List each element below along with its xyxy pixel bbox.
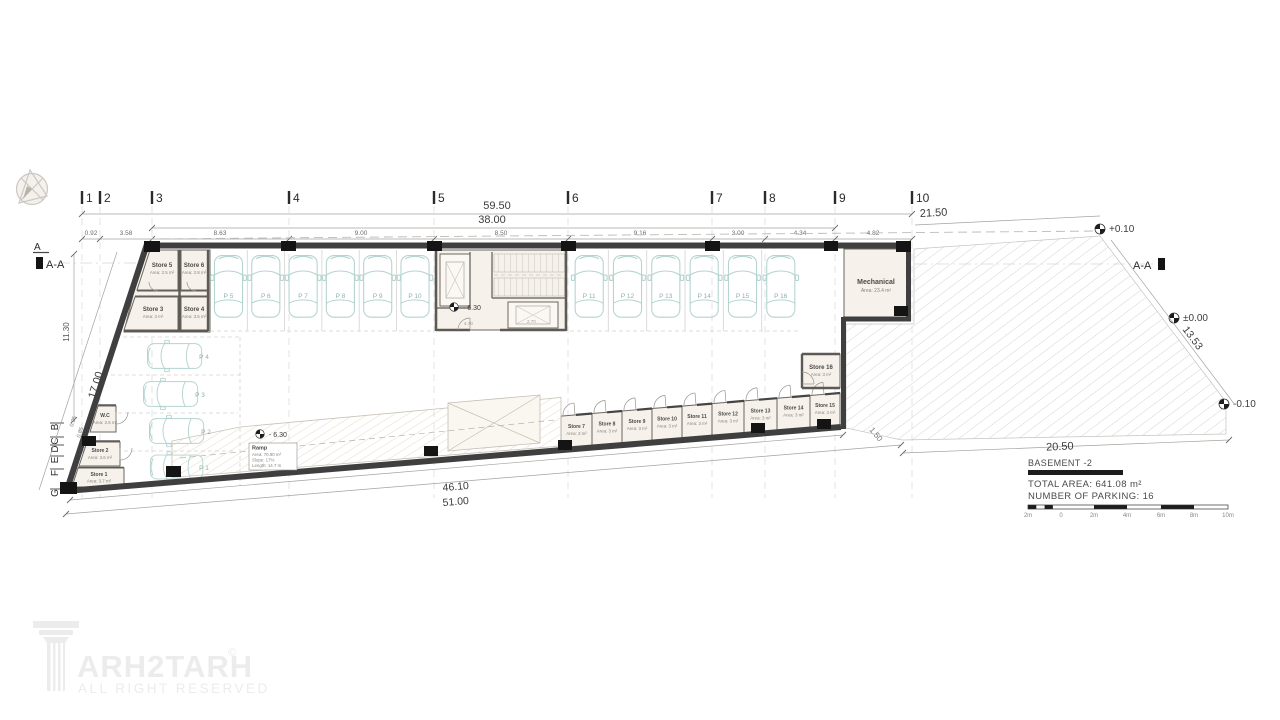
- scale-label: 10m: [1222, 513, 1234, 519]
- store-1-area: Area: 3.7 m²: [87, 479, 112, 484]
- parking-label: P 6: [261, 293, 271, 300]
- section-label-left: A-A: [46, 259, 65, 271]
- store-9-area: Area: 3 m²: [627, 426, 648, 431]
- parking-label: P 3: [195, 392, 205, 399]
- grid-row-a: A: [34, 242, 41, 253]
- basement-plan-drawing: 1 2 3 4 5 6 7 8 9 10 59.50 38.00 21.50 0…: [0, 0, 1280, 720]
- section-marker-right: [1158, 258, 1165, 270]
- store-4-area: Area: 3.5 m²: [182, 314, 207, 319]
- store-2-area: Area: 3.6 m²: [88, 455, 113, 460]
- ramp-name: Ramp: [252, 446, 268, 452]
- store-1-name: Store 1: [91, 472, 108, 478]
- store-12-area: Area: 3 m²: [718, 419, 739, 424]
- level-basement-stair: - 6.30: [463, 305, 481, 312]
- parking-label: P 16: [774, 293, 788, 300]
- store-5-name: Store 5: [152, 263, 173, 269]
- dim-seg-6: 9.16: [634, 230, 647, 237]
- scale-label: 4m: [1123, 513, 1131, 519]
- store-16-area: Area: 3 m²: [811, 372, 832, 377]
- grid-col-6: 6: [572, 191, 579, 205]
- store-3-area: Area: 3 m²: [143, 314, 164, 319]
- scale-label: 2m: [1024, 513, 1032, 519]
- dim-seg-4: 9.00: [355, 230, 368, 237]
- grid-col-1: 1: [86, 191, 93, 205]
- ramp-slope-text: Slope: 17%: [252, 458, 275, 463]
- mechanical-area: Area: 23.4 m²: [861, 288, 892, 294]
- parking-label: P 12: [621, 293, 635, 300]
- store-3-name: Store 3: [143, 307, 164, 313]
- store-8-name: Store 8: [599, 422, 616, 428]
- dim-lseg-1: 0.25: [69, 416, 78, 428]
- grid-row-f: F: [50, 470, 61, 476]
- store-13-name: Store 13: [751, 409, 771, 415]
- store-2-name: Store 2: [92, 448, 109, 454]
- level-zero: ±0.00: [1183, 313, 1208, 324]
- store-10-name: Store 10: [657, 417, 677, 423]
- ramp-length-text: Length: 14.7 m: [252, 463, 282, 468]
- wc-name: W.C: [100, 413, 110, 419]
- parking-label: P 9: [373, 293, 383, 300]
- parking-label: P 15: [736, 293, 750, 300]
- store-8-area: Area: 3 m²: [597, 429, 618, 434]
- store-13-area: Area: 3 m²: [750, 416, 771, 421]
- grid-row-c: C: [50, 437, 61, 444]
- dim-stair-width: 4.70: [464, 321, 473, 326]
- dim-overall-top: 59.50: [483, 200, 511, 212]
- dim-bottom-outer: 51.00: [442, 495, 469, 509]
- floor-title: BASEMENT -2: [1028, 458, 1092, 468]
- scale-bar: [1028, 505, 1228, 509]
- store-12-name: Store 12: [718, 412, 738, 418]
- store-14-area: Area: 3 m²: [783, 413, 804, 418]
- store-11-name: Store 11: [687, 414, 707, 420]
- level-basement-ramp: - 6.30: [269, 432, 287, 439]
- floor-plan-sheet: 1 2 3 4 5 6 7 8 9 10 59.50 38.00 21.50 0…: [0, 0, 1280, 720]
- grid-col-9: 9: [839, 191, 846, 205]
- brand-tagline: ALL RIGHT RESERVED: [78, 681, 270, 696]
- dim-yard-bottom: 20.50: [1046, 440, 1074, 453]
- north-arrow-icon: [17, 170, 48, 205]
- dim-yard-top: 21.50: [920, 207, 948, 220]
- scale-label: 0: [1059, 513, 1063, 519]
- copyright-icon: ©: [228, 647, 236, 659]
- dim-left-height: 11.30: [62, 322, 71, 342]
- total-area-text: TOTAL AREA: 641.08 m²: [1028, 479, 1142, 490]
- store-7-area: Area: 3 m²: [566, 431, 587, 436]
- column-icon: [33, 621, 79, 691]
- grid-col-7: 7: [716, 191, 723, 205]
- store-15-name: Store 15: [815, 403, 835, 409]
- level-yard: -0.10: [1233, 399, 1256, 410]
- grid-col-10: 10: [916, 191, 930, 205]
- grid-col-8: 8: [769, 191, 776, 205]
- parking-label: P 14: [698, 293, 712, 300]
- parking-label: P 1: [199, 465, 209, 472]
- scale-label: 6m: [1157, 513, 1165, 519]
- parking-label: P 13: [659, 293, 673, 300]
- dim-seg-9: 4.82: [867, 230, 880, 237]
- dim-seg-7: 3.00: [732, 230, 745, 237]
- parking-label: P 10: [408, 293, 422, 300]
- parking-label: P 11: [583, 293, 596, 300]
- section-marker-left: [36, 257, 43, 269]
- store-11-area: Area: 3 m²: [687, 421, 708, 426]
- grid-col-5: 5: [438, 191, 445, 205]
- dim-seg-1: 0.92: [85, 230, 98, 237]
- parking-count-text: NUMBER OF PARKING: 16: [1028, 491, 1154, 502]
- dim-seg-2: 3.58: [120, 230, 133, 237]
- brand-name: ARH2TARH: [77, 649, 253, 684]
- parking-label: P 4: [199, 354, 209, 361]
- dim-building-top: 38.00: [478, 214, 506, 226]
- store-15-area: Area: 3 m²: [815, 410, 836, 415]
- store-7-name: Store 7: [568, 424, 585, 430]
- title-block: BASEMENT -2 TOTAL AREA: 641.08 m² NUMBER…: [1024, 458, 1234, 519]
- parking-label: P 8: [336, 293, 346, 300]
- wc-area: Area: 2.6 m²: [93, 420, 118, 425]
- parking-label: P 2: [201, 429, 211, 436]
- grid-col-2: 2: [104, 191, 111, 205]
- store-6-name: Store 6: [184, 263, 205, 269]
- parking-label: P 5: [224, 293, 234, 300]
- store-16-name: Store 16: [809, 365, 833, 371]
- grid-col-4: 4: [293, 191, 300, 205]
- dim-seg-3: 8.63: [214, 230, 227, 237]
- level-street: +0.10: [1109, 224, 1135, 235]
- grid-row-g: G: [50, 489, 61, 497]
- store-10-area: Area: 3 m²: [657, 424, 678, 429]
- grid-row-e: E: [50, 456, 61, 463]
- store-6-area: Area: 2.8 m²: [182, 270, 207, 275]
- parking-label: P 7: [298, 293, 308, 300]
- store-4-name: Store 4: [184, 307, 205, 313]
- scale-label: 2m: [1090, 513, 1098, 519]
- ramp-area-text: Area: 70.90 m²: [252, 452, 282, 457]
- store-14-name: Store 14: [784, 406, 804, 412]
- scale-label: 8m: [1190, 513, 1198, 519]
- store-5-area: Area: 2.5 m²: [150, 270, 175, 275]
- ramp-label-box: Ramp Area: 70.90 m² Slope: 17% Length: 1…: [249, 443, 297, 470]
- dim-elev-width: 2.70: [527, 319, 536, 324]
- store-9-name: Store 9: [629, 419, 646, 425]
- brand-logo: ARH2TARH © ALL RIGHT RESERVED: [33, 621, 270, 696]
- top-dimensions: 59.50 38.00 21.50 0.92 3.58 8.63 9.00 8.…: [79, 200, 1100, 242]
- grid-col-3: 3: [156, 191, 163, 205]
- section-label-right: A-A: [1133, 260, 1152, 272]
- mechanical-name: Mechanical: [857, 279, 895, 286]
